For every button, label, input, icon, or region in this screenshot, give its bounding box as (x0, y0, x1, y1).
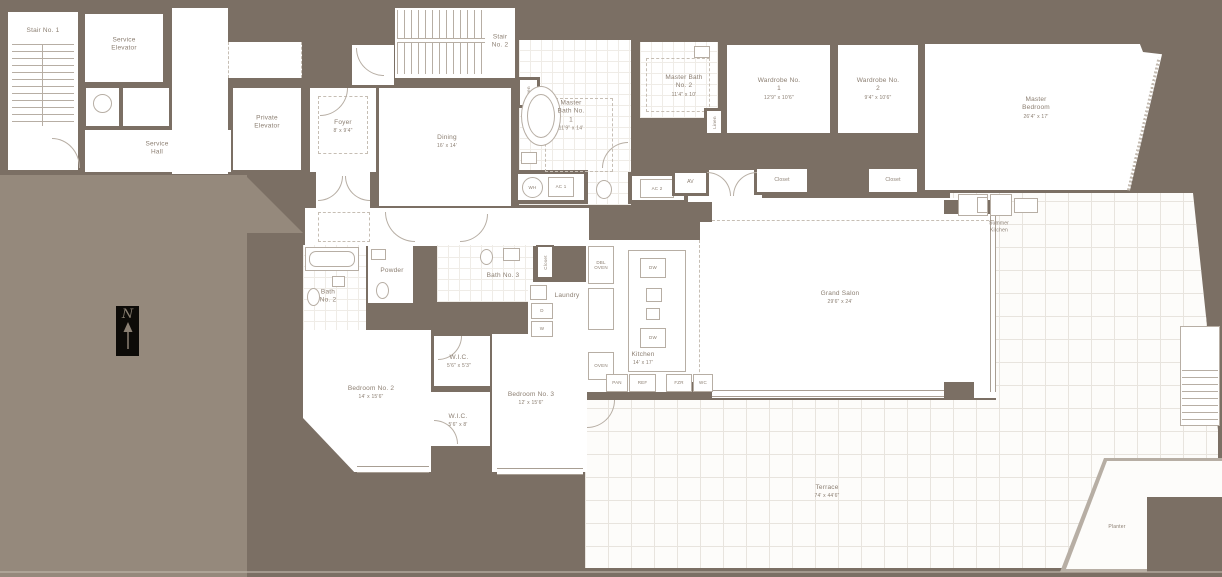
label-wic-1: W.I.C. 5'6" x 5'3" (447, 354, 471, 370)
salon-beam-dashed (702, 220, 994, 221)
wine-cooler: WC (693, 374, 713, 392)
gallery-closet-dashed (318, 212, 370, 242)
toilet-master (596, 180, 612, 199)
stair-1-treads (12, 44, 74, 126)
label-terrace: Terrace 74' x 44'6" (814, 484, 839, 500)
sink-laundry (530, 285, 547, 300)
closet-c: Closet (536, 245, 554, 279)
linen-closet-b: Linen (704, 108, 724, 136)
label-bath-2: Bath No. 2 (315, 289, 341, 306)
label-grand-salon: Grand Salon 29'6" x 24' (821, 290, 860, 306)
freezer: FZR (666, 374, 692, 392)
north-arrow: N (116, 306, 139, 356)
ac1-unit: AC 1 (548, 177, 574, 197)
label-wic-2: W.I.C. 5'6" x 8' (448, 413, 467, 429)
salon-window-right (990, 216, 996, 392)
dishwasher-2: DW (640, 328, 666, 348)
linen-b-label: Linen (711, 116, 716, 129)
label-private-elevator: Private Elevator (247, 115, 287, 132)
summer-kitchen-sink (977, 197, 988, 213)
closet-b: Closet (866, 166, 920, 195)
label-master-bath-1: Master Bath No. 1 11'9" x 14' (555, 100, 587, 133)
dbl-oven: DBL OVEN (588, 246, 614, 284)
salon-post-tl (688, 202, 712, 222)
label-planter: Planter (1108, 524, 1125, 531)
elevator-lobby (228, 42, 302, 78)
washer: W (531, 321, 553, 337)
sink-bath-3 (503, 248, 520, 261)
label-stair-2: Stair No. 2 (487, 34, 513, 51)
pantry: PAN (606, 374, 628, 392)
island-sink-1 (646, 288, 662, 302)
terrace-stair-treads (1182, 370, 1218, 424)
salon-post-br (944, 382, 974, 400)
water-heater: WH (522, 177, 543, 198)
cooktop (588, 288, 614, 330)
bedroom-2-window (357, 466, 429, 473)
label-summer-kitchen: Summer Kitchen (982, 221, 1016, 234)
room-bedroom-2 (303, 330, 431, 472)
bottom-rim (0, 571, 1222, 573)
toilet-bath-3 (480, 249, 493, 265)
chute-circle (93, 94, 112, 113)
label-bedroom-3: Bedroom No. 3 12' x 15'6" (508, 391, 554, 407)
adjacent-mass-bevel (245, 175, 303, 233)
closet-a: Closet (754, 166, 810, 195)
label-bedroom-2: Bedroom No. 2 14' x 15'6" (348, 385, 394, 401)
label-master-bedroom: Master Bedroom 26'4" x 17' (1012, 96, 1060, 120)
toilet-powder (376, 282, 389, 299)
room-storage (123, 88, 169, 126)
label-wardrobe-1: Wardrobe No. 1 12'9" x 10'6" (757, 77, 801, 101)
stair-1-divider (42, 44, 43, 126)
sink-master-2 (694, 46, 710, 58)
sink-bath-2 (332, 276, 345, 287)
refrigerator: REF (629, 374, 656, 392)
dishwasher-1: DW (640, 258, 666, 278)
label-laundry: Laundry (555, 292, 580, 300)
label-dining: Dining 16' x 14' (437, 134, 457, 150)
stair-2-landing (397, 38, 485, 43)
corner-mass (1147, 497, 1222, 577)
tub-bath-2-inner (309, 251, 355, 267)
sink-powder (371, 249, 386, 260)
salon-window-bottom (702, 390, 970, 397)
adjacent-mass (0, 175, 247, 577)
label-kitchen: Kitchen 14' x 17' (631, 351, 654, 367)
summer-kitchen-counter-2 (990, 194, 1012, 216)
summer-kitchen-counter-3 (1014, 198, 1038, 213)
label-service-hall: Service Hall (139, 141, 175, 158)
label-master-bath-2: Master Bath No. 2 11'4" x 10' (663, 74, 705, 98)
label-wardrobe-2: Wardrobe No. 2 9'4" x 10'6" (856, 77, 900, 101)
sink-master-1 (521, 152, 537, 164)
floor-plan: Linen WH AC 1 AC 2 AV Linen Closet Close… (0, 0, 1222, 577)
label-bath-3: Bath No. 3 (487, 272, 520, 280)
bedroom-3-window (497, 468, 583, 475)
label-foyer: Foyer 8' x 9'4" (333, 119, 352, 135)
label-service-elevator: Service Elevator (103, 37, 145, 54)
service-corridor-vertical (172, 8, 228, 174)
north-arrow-icon (122, 322, 134, 350)
kitchen-salon-dashed (699, 240, 700, 392)
island-sink-2 (646, 308, 660, 320)
av-closet: AV (672, 170, 709, 196)
tub-inner (527, 94, 555, 138)
closet-c-label: Closet (543, 255, 548, 270)
dryer: D (531, 303, 553, 319)
label-stair-1: Stair No. 1 (27, 27, 60, 35)
north-label: N (122, 308, 133, 321)
ac2-unit: AC 2 (640, 179, 674, 198)
label-powder: Powder (380, 267, 403, 275)
